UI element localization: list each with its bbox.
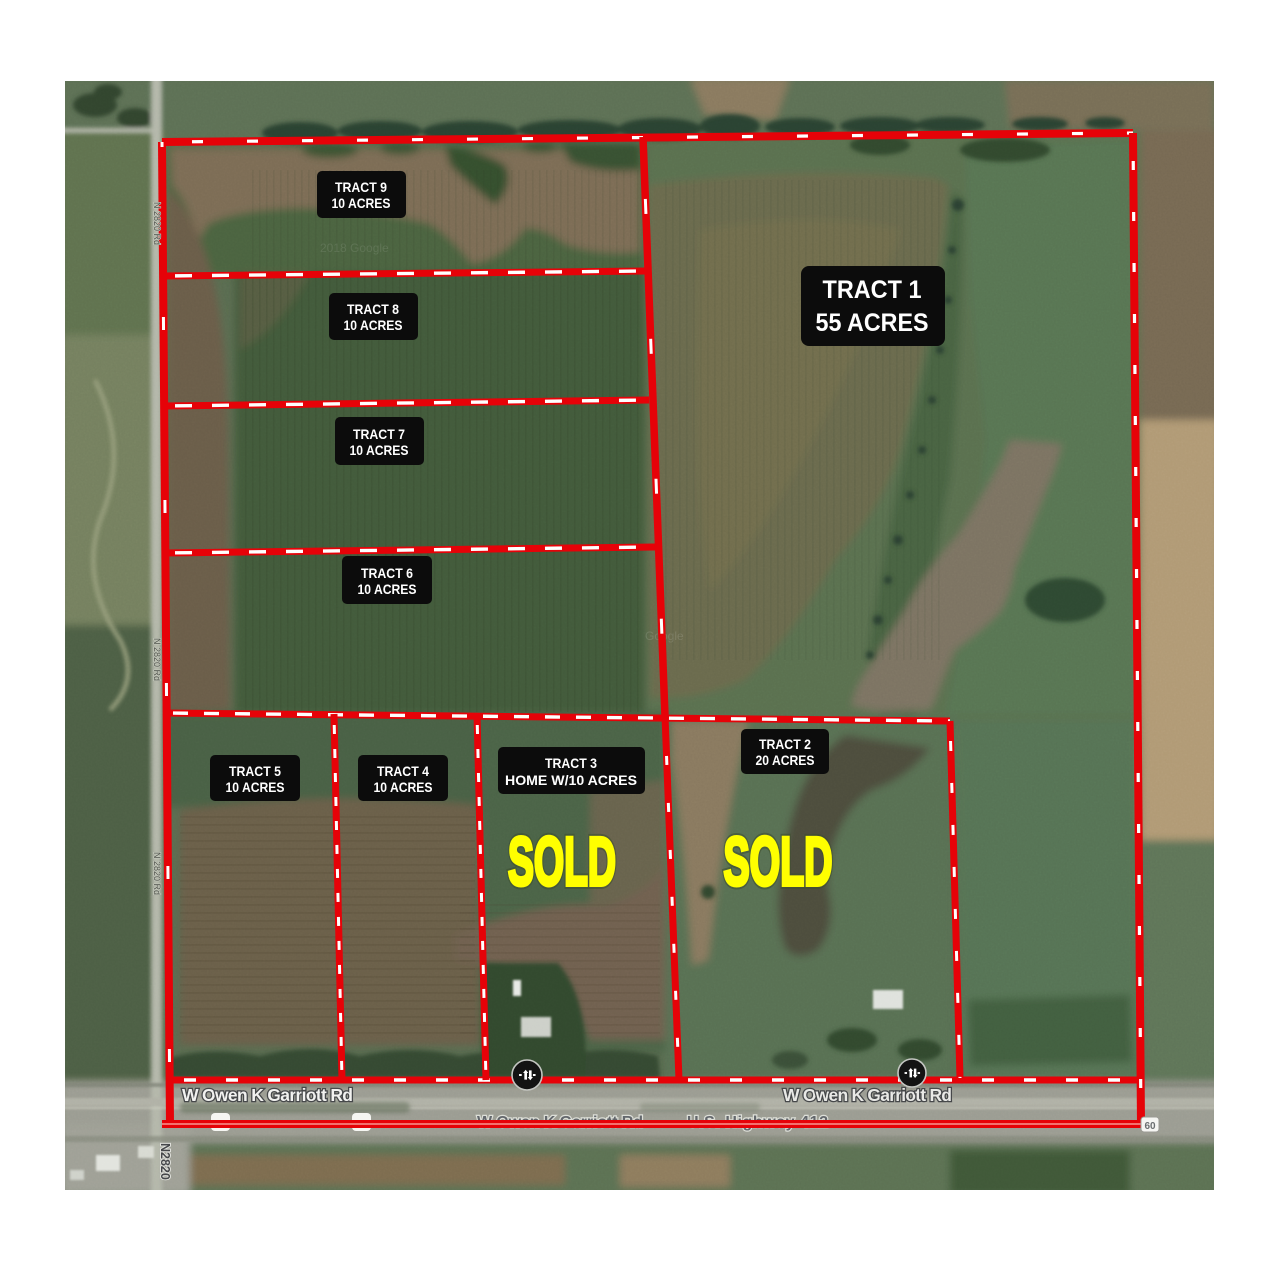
svg-text:N 2820 Rd: N 2820 Rd: [152, 852, 162, 895]
svg-text:20 ACRES: 20 ACRES: [756, 752, 815, 768]
svg-text:10 ACRES: 10 ACRES: [332, 195, 391, 211]
svg-text:60: 60: [1144, 1121, 1156, 1132]
svg-text:55 ACRES: 55 ACRES: [816, 309, 929, 337]
svg-text:W Owen K Garriott Rd: W Owen K Garriott Rd: [182, 1085, 353, 1105]
svg-text:TRACT 4: TRACT 4: [377, 763, 429, 779]
svg-text:N 2820 Rd: N 2820 Rd: [152, 638, 162, 681]
svg-text:10 ACRES: 10 ACRES: [350, 442, 409, 458]
svg-text:TRACT 9: TRACT 9: [335, 179, 387, 195]
svg-text:W Owen K Garriott Rd: W Owen K Garriott Rd: [783, 1085, 952, 1105]
svg-text:10 ACRES: 10 ACRES: [358, 581, 417, 597]
svg-text:TRACT 1: TRACT 1: [823, 276, 922, 304]
svg-text:10 ACRES: 10 ACRES: [374, 779, 433, 795]
svg-text:TRACT 7: TRACT 7: [353, 426, 405, 442]
svg-text:N 2820 Rd: N 2820 Rd: [152, 202, 162, 245]
svg-text:HOME W/10 ACRES: HOME W/10 ACRES: [505, 772, 637, 788]
svg-text:SOLD: SOLD: [508, 823, 616, 900]
svg-text:10 ACRES: 10 ACRES: [226, 779, 285, 795]
svg-text:TRACT 8: TRACT 8: [347, 301, 399, 317]
svg-text:TRACT 6: TRACT 6: [361, 565, 413, 581]
svg-text:TRACT 5: TRACT 5: [229, 763, 281, 779]
svg-text:2018 Google: 2018 Google: [320, 241, 389, 255]
svg-text:TRACT 3: TRACT 3: [545, 755, 597, 771]
svg-text:10 ACRES: 10 ACRES: [344, 317, 403, 333]
svg-text:N2820: N2820: [158, 1143, 172, 1180]
svg-text:SOLD: SOLD: [724, 823, 833, 900]
svg-text:TRACT 2: TRACT 2: [759, 736, 811, 752]
